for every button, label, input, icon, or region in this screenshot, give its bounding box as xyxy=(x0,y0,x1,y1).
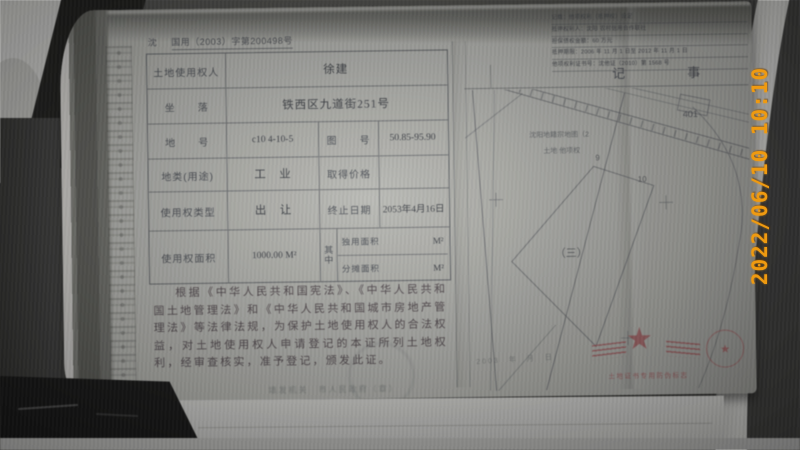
serial-number: 国用（2003）字第200498号 xyxy=(171,34,293,51)
anti-forgery-stamp: ★ 土地证书专用防伪标志 ★ xyxy=(564,327,755,384)
table-row-location: 坐 落 铁西区九道街251号 xyxy=(147,84,447,123)
table-row-holder: 土地使用权人 徐建 xyxy=(147,50,447,88)
apportioned-unit: M² xyxy=(433,262,444,272)
apportioned-label: 分摊面积 xyxy=(342,261,433,274)
star-icon: ★ xyxy=(720,342,730,355)
exclusive-unit: M² xyxy=(433,236,444,246)
use-label: 地类(用途) xyxy=(148,159,226,192)
map-section-label: （三） xyxy=(555,246,588,259)
holder-label: 土地使用权人 xyxy=(147,54,225,89)
camera-timestamp: 2022/06/10 10:10 xyxy=(748,44,772,308)
parcel-label: 地 号 xyxy=(148,124,226,159)
price-value xyxy=(378,155,446,188)
expiry-label: 终止日期 xyxy=(319,189,380,228)
stamp-wing-right xyxy=(666,341,700,359)
use-value: 工 业 xyxy=(226,157,318,190)
railway-rail xyxy=(484,86,749,152)
area-value: 1000.00 M² xyxy=(227,229,320,282)
location-value: 铁西区九道街251号 xyxy=(225,85,445,122)
certificate-right-page: 记载：他项权利（抵押权）设定 抵押权利人：沈阳 农村信用合作联社 担保债权金额：… xyxy=(463,5,752,391)
notes-heading: 记 事 xyxy=(612,62,712,82)
photo-scene: 沈 国用（2003）字第200498号 土地使用权人 徐建 坐 落 铁西区九道街… xyxy=(0,0,800,450)
mapno-label: 图 号 xyxy=(318,121,378,156)
serial-prefix: 沈 xyxy=(148,35,158,50)
light-streak xyxy=(96,413,138,417)
red-seal-icon: ★ xyxy=(706,329,745,368)
railway-rail xyxy=(488,86,749,163)
ornamental-border xyxy=(106,46,137,390)
light-streak xyxy=(18,404,78,410)
stamp-wing-left xyxy=(592,341,626,360)
notes-corner-line xyxy=(490,65,491,88)
table-row-use: 地类(用途) 工 业 取得价格 xyxy=(148,154,448,191)
table-row-area: 使用权面积 1000.00 M² 其中 独用面积 M² 分摊面积 xyxy=(149,226,450,283)
exclusive-label: 独用面积 xyxy=(341,235,432,248)
parcel-value: c10 4-10-5 xyxy=(226,122,318,157)
map-handwritten-note: 土地 他项权 xyxy=(543,146,580,156)
area-breakdown: 其中 独用面积 M² 分摊面积 M² xyxy=(319,227,448,281)
price-label: 取得价格 xyxy=(318,156,378,189)
map-label-401: 401 xyxy=(683,109,698,119)
land-info-table: 土地使用权人 徐建 坐 落 铁西区九道街251号 地 号 c10 4-10-5 … xyxy=(146,49,451,284)
area-label: 使用权面积 xyxy=(149,231,228,284)
certificate-page: 沈 国用（2003）字第200498号 土地使用权人 徐建 坐 落 铁西区九道街… xyxy=(59,1,756,403)
map-label-10: 10 xyxy=(638,175,648,184)
among-label: 其中 xyxy=(320,229,337,281)
star-icon: ★ xyxy=(626,325,653,355)
map-label-9: 9 xyxy=(595,153,600,162)
railway-spur xyxy=(578,86,749,124)
table-row-tenure: 使用权类型 出 让 终止日期 2053年4月16日 xyxy=(149,187,450,230)
area-sub-rows: 独用面积 M² 分摊面积 M² xyxy=(336,227,448,281)
tenure-value: 出 让 xyxy=(227,190,320,229)
apportioned-area-row: 分摊面积 M² xyxy=(338,253,448,281)
expiry-value: 2053年4月16日 xyxy=(379,188,448,227)
table-row-parcel: 地 号 c10 4-10-5 图 号 50.85-95.90 xyxy=(148,119,448,158)
exclusive-area-row: 独用面积 M² xyxy=(337,227,447,255)
location-label: 坐 落 xyxy=(147,89,225,124)
stamp-caption: 土地证书专用防伪标志 xyxy=(588,369,708,381)
map-handwritten-note: 沈阳地籍宗地图（2 xyxy=(529,129,589,139)
certificate-left-page: 沈 国用（2003）字第200498号 土地使用权人 徐建 坐 落 铁西区九道街… xyxy=(146,31,457,397)
table-surface-strip xyxy=(0,438,800,450)
mapno-value: 50.85-95.90 xyxy=(378,120,446,155)
photo-of-land-certificate: 沈 国用（2003）字第200498号 土地使用权人 徐建 坐 落 铁西区九道街… xyxy=(0,0,800,450)
certificate-serial: 沈 国用（2003）字第200498号 xyxy=(148,34,293,51)
paper-sheet-line xyxy=(198,423,712,428)
tenure-label: 使用权类型 xyxy=(149,192,228,231)
holder-value: 徐建 xyxy=(225,50,445,87)
